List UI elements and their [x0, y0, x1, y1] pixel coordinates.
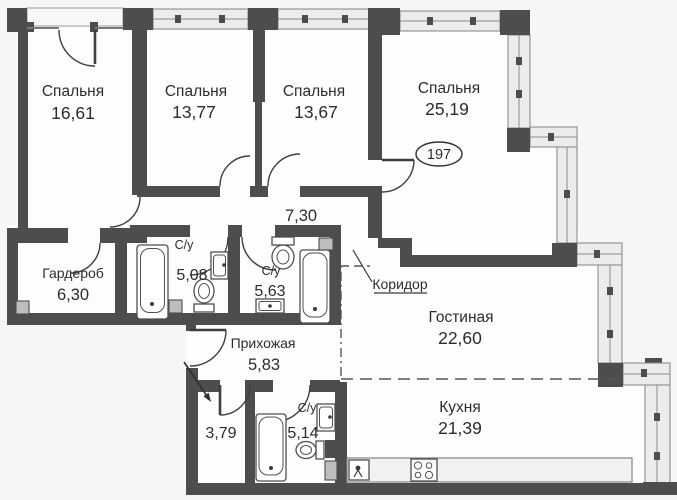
- toilet-icon: [296, 441, 324, 459]
- bathtub-icon: [137, 245, 168, 319]
- vent-tick: [645, 358, 662, 363]
- room-name: Кухня: [439, 399, 480, 416]
- room-area: 25,19: [425, 99, 469, 119]
- vent-shaft: [16, 301, 29, 314]
- room-area: 5,83: [248, 356, 280, 374]
- unit-number: 197: [427, 147, 451, 163]
- room-area: 7,30: [285, 207, 317, 225]
- stove-icon: [411, 459, 437, 481]
- bathtub-icon: [300, 250, 330, 323]
- sink-icon: [256, 299, 284, 313]
- room-name: Гардероб: [42, 265, 104, 281]
- room-area: 13,67: [294, 102, 338, 122]
- room-name: Спальня: [165, 83, 227, 100]
- room-area: 13,77: [172, 102, 216, 122]
- room-area: 22,60: [438, 328, 482, 348]
- room-name: Спальня: [418, 80, 480, 97]
- balcony-outline: [27, 8, 123, 26]
- room-area: 21,39: [438, 418, 482, 438]
- room-area: 16,61: [51, 103, 95, 123]
- room-name: Гостиная: [428, 309, 493, 326]
- room-name: Спальня: [42, 83, 104, 100]
- room-area: 6,30: [57, 286, 89, 304]
- vent-shaft: [169, 300, 182, 313]
- room-area: 5,08: [176, 267, 207, 284]
- room-name: Спальня: [283, 83, 345, 100]
- kitchen-sink-icon: [349, 460, 369, 480]
- floor-plan: Спальня 16,61 Спальня 13,77 Спальня 13,6…: [0, 0, 677, 500]
- corridor-label: Коридор: [372, 276, 428, 292]
- room-area: 3,79: [205, 425, 236, 442]
- vent-shaft: [325, 461, 337, 480]
- room-name: С/у: [298, 401, 318, 415]
- room-name: С/у: [262, 264, 282, 278]
- sink-icon: [317, 404, 335, 431]
- room-name: Прихожая: [231, 335, 296, 351]
- room-area: 5,63: [254, 283, 285, 300]
- room-name: С/у: [175, 238, 195, 252]
- sink-icon: [211, 252, 228, 279]
- room-area: 5,14: [287, 425, 318, 442]
- vent-shaft: [319, 238, 333, 250]
- bathtub-icon: [256, 414, 286, 481]
- kitchen-counter: [347, 458, 632, 482]
- floor-plan-svg: Спальня 16,61 Спальня 13,77 Спальня 13,6…: [0, 0, 677, 500]
